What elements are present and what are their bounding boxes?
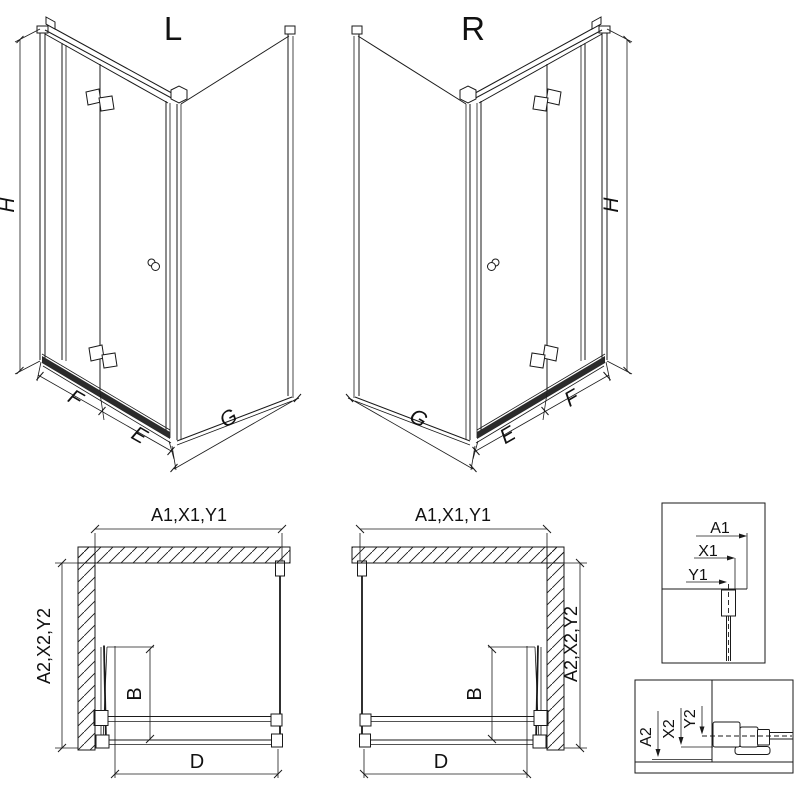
floor-profile-section bbox=[713, 722, 793, 755]
detail-top-y1-label: Y1 bbox=[688, 567, 708, 584]
hinge-bottom bbox=[89, 345, 117, 368]
iso-enclosure-linework bbox=[15, 17, 301, 472]
plan-front-rail bbox=[97, 714, 283, 747]
iso-right-label: R bbox=[461, 10, 485, 47]
detail-top-a1-label: A1 bbox=[710, 520, 730, 537]
iso-enclosure-right bbox=[346, 17, 632, 472]
plan-left-dim-side-label: A2,X2,Y2 bbox=[34, 608, 54, 684]
dim-fe-lines bbox=[37, 362, 175, 459]
detail-bottom-y2-label: Y2 bbox=[682, 709, 699, 729]
bifold-door bbox=[45, 34, 170, 438]
corner-post bbox=[171, 86, 187, 440]
top-rail bbox=[45, 17, 179, 101]
iso-left-label: L bbox=[164, 10, 182, 47]
plan-left-dim-b-label: B bbox=[124, 687, 146, 700]
dim-label-f-left: F bbox=[64, 385, 88, 412]
plan-right-dim-b-label: B bbox=[464, 687, 486, 700]
wall-profile bbox=[37, 26, 48, 360]
detail-top-x1-label: X1 bbox=[698, 543, 718, 560]
plan-right-dim-d-label: D bbox=[434, 751, 448, 773]
hinge-top bbox=[86, 89, 114, 111]
technical-drawing-page: L R H F E G H F E G bbox=[0, 0, 800, 800]
plan-folded-door bbox=[94, 646, 115, 779]
door-knob bbox=[148, 259, 160, 271]
side-panel bbox=[177, 26, 295, 445]
plan-left-dim-d-label: D bbox=[190, 751, 204, 773]
detail-box-bottom: A2 X2 Y2 bbox=[635, 680, 793, 773]
dim-label-f-right: F bbox=[560, 385, 584, 412]
shower-enclosure-diagram: L R H F E G H F E G bbox=[0, 0, 800, 800]
dim-g-lines bbox=[171, 394, 302, 472]
detail-bottom-x2-label: X2 bbox=[661, 719, 678, 739]
plan-right-dim-top-label: A1,X1,Y1 bbox=[415, 505, 491, 525]
dim-label-h-left: H bbox=[0, 197, 19, 213]
plan-left-dim-top-label: A1,X1,Y1 bbox=[151, 505, 227, 525]
detail-bottom-a2-label: A2 bbox=[638, 727, 655, 747]
plan-dim-a2-lines bbox=[55, 559, 78, 752]
dim-label-h-right: H bbox=[600, 197, 623, 213]
plan-right-dim-side-label: A2,X2,Y2 bbox=[561, 606, 581, 682]
detail-box-top: A1 X1 Y1 bbox=[662, 503, 765, 663]
